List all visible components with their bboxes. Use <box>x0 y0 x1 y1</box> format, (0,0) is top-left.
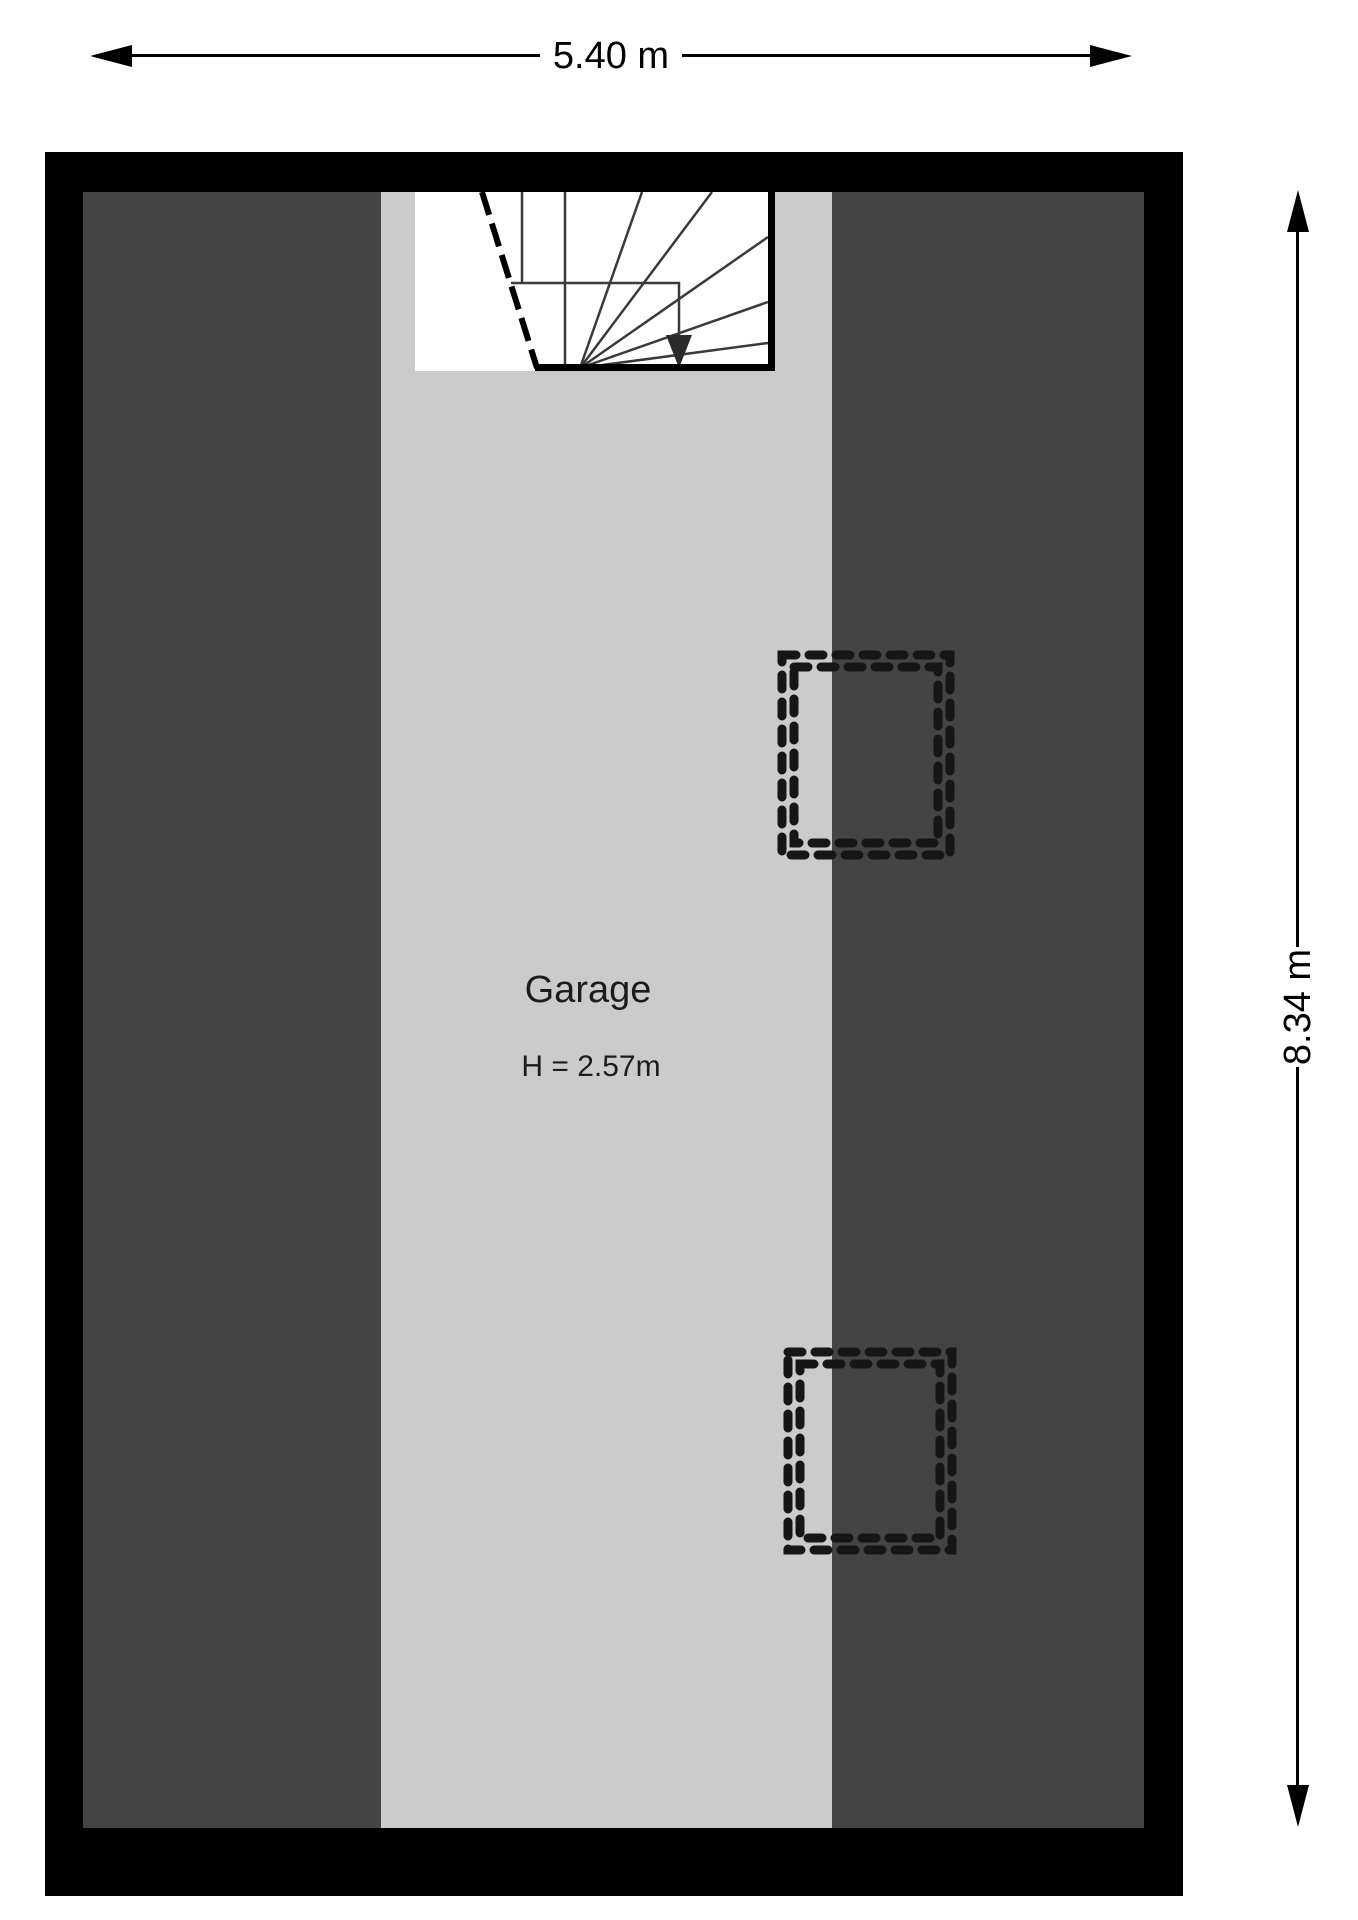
floorplan-canvas: 5.40 m 8.34 m <box>0 0 1358 1920</box>
dim-arrow-up-icon <box>1287 190 1309 232</box>
dimension-line <box>1296 1067 1299 1789</box>
dim-arrow-down-icon <box>1287 1785 1309 1827</box>
room-name-label: Garage <box>468 968 708 1012</box>
room-height-label: H = 2.57m <box>466 1049 716 1085</box>
dimension-line <box>128 54 540 57</box>
stair-direction-arrow-icon <box>666 335 692 368</box>
roof-window-dashed <box>776 1340 964 1562</box>
dimension-line <box>682 54 1094 57</box>
stair-cut-line <box>482 192 537 368</box>
staircase-drawing <box>415 192 775 371</box>
outer-wall <box>45 152 1183 1896</box>
dimension-line <box>1296 228 1299 947</box>
width-dimension-label: 5.40 m <box>511 34 711 78</box>
staircase <box>415 192 775 371</box>
walk-line <box>511 283 679 338</box>
dim-arrow-right-icon <box>1090 45 1132 67</box>
dim-arrow-left-icon <box>90 45 132 67</box>
roof-window-dashed <box>770 643 962 867</box>
